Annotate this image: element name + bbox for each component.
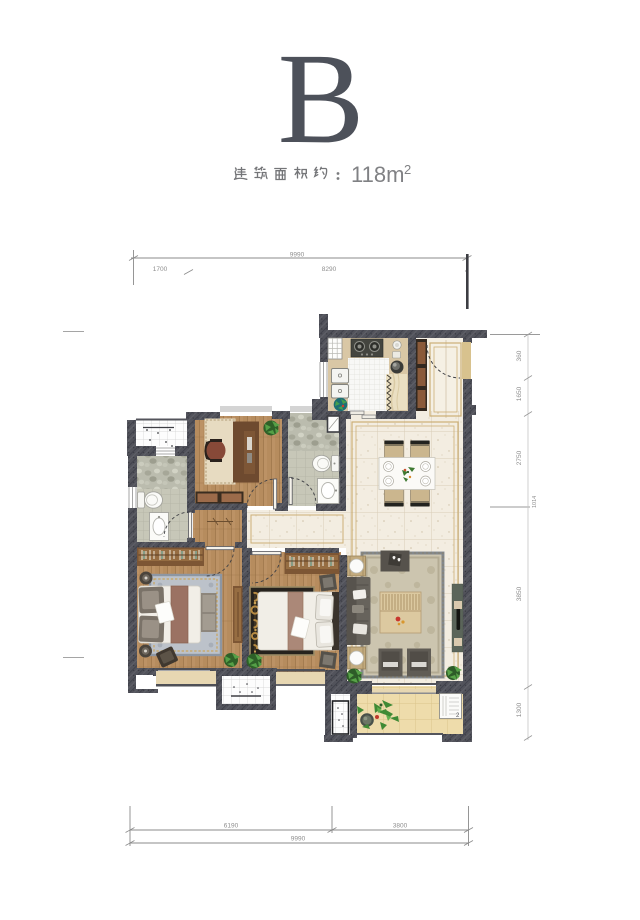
svg-text:360: 360 [516, 350, 523, 361]
svg-text:1300: 1300 [516, 702, 523, 717]
svg-text:3850: 3850 [516, 586, 523, 601]
svg-text:9990: 9990 [290, 252, 305, 259]
svg-text:3800: 3800 [393, 823, 408, 830]
svg-text:B: B [278, 27, 365, 171]
svg-text:2: 2 [404, 162, 411, 177]
svg-text:1650: 1650 [516, 386, 523, 401]
svg-text:9990: 9990 [291, 836, 306, 843]
svg-text:1700: 1700 [153, 266, 168, 273]
svg-text:6190: 6190 [224, 823, 239, 830]
svg-text:118m: 118m [351, 162, 404, 187]
svg-text:8290: 8290 [322, 266, 337, 273]
svg-text:1014: 1014 [532, 496, 538, 508]
svg-text:2750: 2750 [516, 450, 523, 465]
